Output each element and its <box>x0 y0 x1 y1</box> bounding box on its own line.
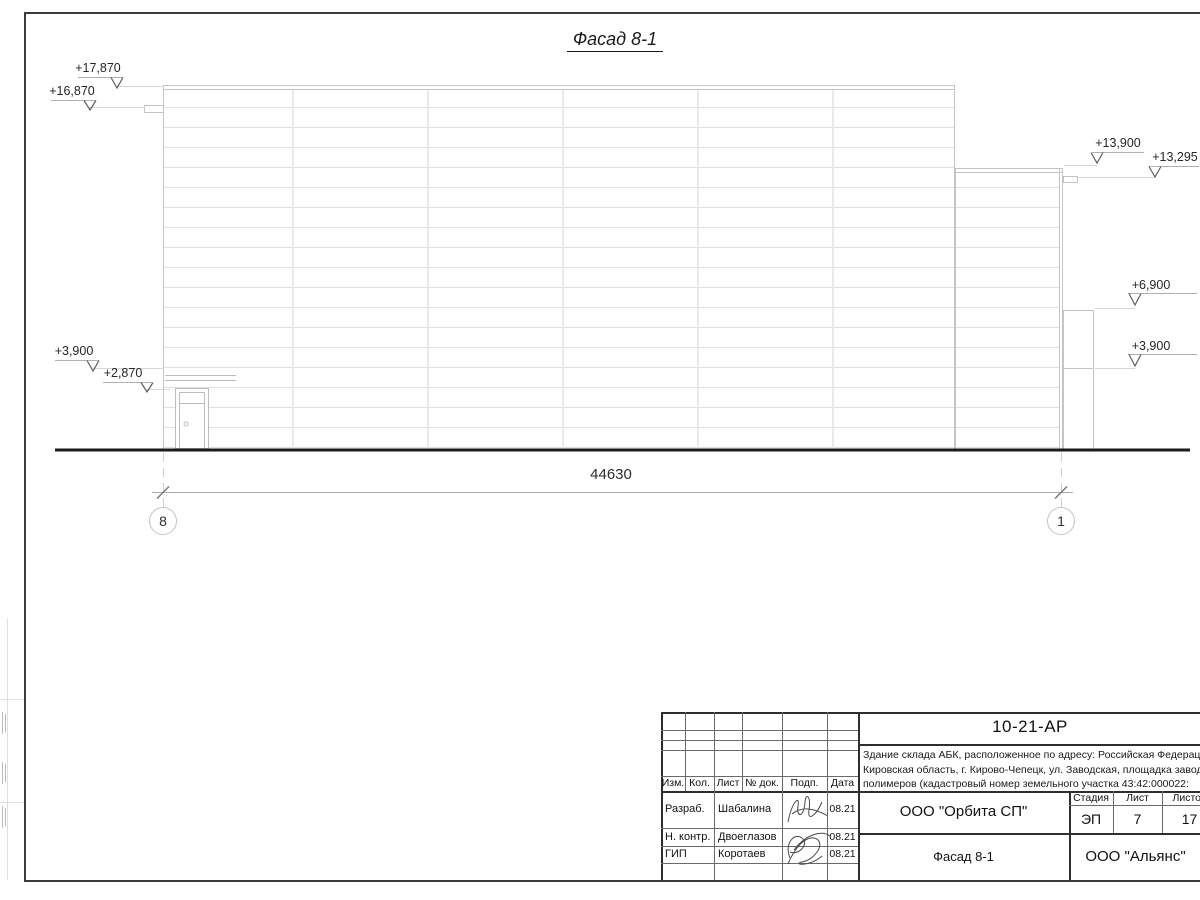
left-stamp-mark <box>5 714 6 732</box>
tb-header-izm: Изм. <box>661 776 685 791</box>
tb-contractor: ООО "Альянс" <box>1069 833 1200 880</box>
tb-header-podp: Подп. <box>782 776 827 791</box>
title-block: 10-21-АР Здание склада АБК, расположенно… <box>661 712 1200 880</box>
elevation-mark-label: +17,870 <box>53 61 143 75</box>
elevation-arrow-icon <box>1128 293 1142 307</box>
tb-role: Разраб. <box>665 791 714 828</box>
tb-sheets-value: 17 <box>1162 805 1200 833</box>
project-description-line: Здание склада АБК, расположенное по адре… <box>863 748 1200 763</box>
drawing-sheet: Фасад 8-1 <box>0 0 1200 900</box>
tb-sheets-header: Листов <box>1162 791 1200 805</box>
elevation-arrow-icon <box>83 100 97 112</box>
annex-outline <box>1064 311 1094 450</box>
project-description-line: полимеров (кадастровый номер земельного … <box>863 777 1200 792</box>
tb-header-kol: Кол. <box>685 776 714 791</box>
left-stamp-mark <box>2 712 3 734</box>
entrance-door-group <box>165 376 236 449</box>
tb-header-doc: № док. <box>742 776 782 791</box>
elevation-arrow-icon <box>1090 152 1104 165</box>
project-description-line: Кировская область, г. Кирово-Чепецк, ул.… <box>863 763 1200 778</box>
axis-bubbles <box>150 508 1075 535</box>
tb-line <box>661 740 858 741</box>
axis-label-left: 8 <box>149 513 177 529</box>
tb-line <box>858 744 1200 746</box>
tb-line <box>661 730 858 731</box>
tb-role: ГИП <box>665 846 714 863</box>
dimension-value: 44630 <box>545 466 677 483</box>
elevation-mark-label: +2,870 <box>78 366 168 380</box>
elevation-mark-label: +13,295 <box>1130 150 1200 164</box>
tb-name: Коротаев <box>718 846 781 863</box>
left-stamp-mark <box>2 762 3 784</box>
frame-bottom <box>24 880 1200 882</box>
tb-sheet-header: Лист <box>1113 791 1162 805</box>
elevation-mark-label: +13,900 <box>1073 136 1163 150</box>
door-frame <box>176 389 209 449</box>
project-description: Здание склада АБК, расположенное по адре… <box>863 748 1200 792</box>
signature-1 <box>788 796 828 822</box>
left-stamp-line <box>7 618 8 880</box>
elevation-mark-leader <box>90 107 145 108</box>
doc-number: 10-21-АР <box>858 717 1200 737</box>
tb-header-list: Лист <box>714 776 742 791</box>
panel-joints <box>293 90 833 448</box>
tb-line <box>661 712 663 880</box>
tb-role: Н. контр. <box>665 828 714 846</box>
left-ledge <box>145 106 164 113</box>
left-stamp-mark <box>5 764 6 782</box>
left-stamp-line <box>0 699 24 700</box>
tb-name: Шабалина <box>718 791 781 828</box>
signature-2 <box>788 833 830 864</box>
panel-lines <box>164 108 1059 448</box>
tb-line <box>661 750 858 751</box>
elevation-mark-label: +16,870 <box>27 84 117 98</box>
elevation-mark-label: +3,900 <box>29 344 119 358</box>
elevation-mark-leader <box>1078 177 1155 178</box>
left-stamp-mark <box>2 806 3 828</box>
signatures <box>778 790 838 880</box>
right-ledge <box>1064 177 1078 183</box>
tb-sheet-value: 7 <box>1113 805 1162 833</box>
dimension-line-group <box>152 487 1073 499</box>
tb-name: Двоеглазов <box>718 828 781 846</box>
tb-line <box>714 712 715 880</box>
elevation-mark-label: +6,900 <box>1106 278 1196 292</box>
elevation-arrow-icon <box>140 382 154 394</box>
elevation-mark-leader <box>117 86 164 87</box>
tb-stage-header: Стадия <box>1069 791 1113 805</box>
elevation-mark-leader <box>1095 368 1135 369</box>
elevation-mark-leader <box>1064 165 1097 166</box>
left-stamp-mark <box>5 808 6 826</box>
tb-company: ООО "Орбита СП" <box>858 791 1069 833</box>
tb-stage-value: ЭП <box>1069 805 1113 833</box>
axis-label-right: 1 <box>1047 513 1075 529</box>
elevation-arrow-icon <box>1128 354 1142 368</box>
left-stamp-line <box>0 802 24 803</box>
elevation-mark-leader <box>1095 308 1135 309</box>
tb-sheet-title: Фасад 8-1 <box>858 833 1069 880</box>
tb-header-data: Дата <box>827 776 858 791</box>
elevation-mark-label: +3,900 <box>1106 339 1196 353</box>
elevation-arrow-icon <box>1148 166 1162 179</box>
